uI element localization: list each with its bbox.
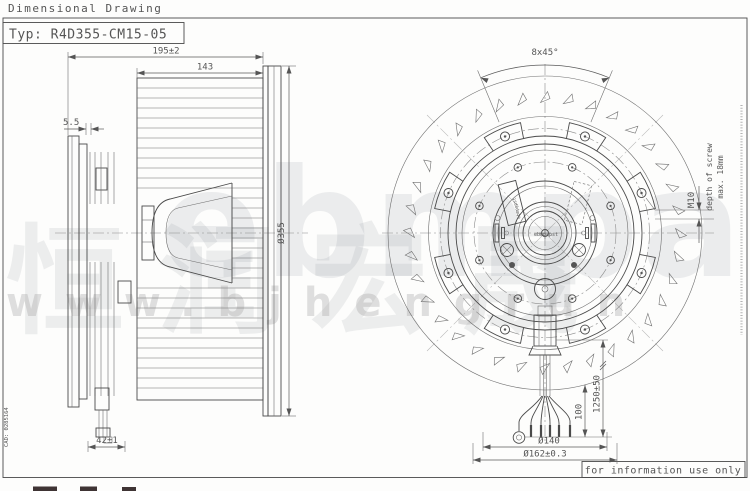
- blade: [656, 294, 670, 308]
- blade: [420, 158, 434, 172]
- svg-text:195±2: 195±2: [152, 47, 179, 57]
- dim-cable-length: 1250±50: [556, 340, 608, 437]
- arrowhead: [88, 445, 96, 450]
- arrowhead: [287, 66, 292, 74]
- dim-lead-strip: 100: [575, 385, 586, 437]
- arrowhead: [601, 430, 606, 438]
- impeller-side: [137, 78, 263, 400]
- side-view: 195±2 143 5.5 Ø355 42±1: [55, 47, 308, 453]
- blade: [492, 354, 505, 368]
- blade: [434, 138, 449, 152]
- blade: [420, 294, 434, 308]
- technical-drawing-canvas: Dimensional Drawing Typ: R4D355-CM15-05 …: [0, 0, 750, 491]
- drawing-title: Dimensional Drawing: [8, 2, 162, 15]
- blade: [410, 180, 424, 193]
- arrowhead: [256, 71, 264, 76]
- mounting-note-line1: depth of screw: [705, 143, 714, 211]
- type-label: Typ: R4D355-CM15-05: [9, 28, 167, 43]
- blade: [666, 273, 680, 286]
- svg-text:42±1: 42±1: [96, 436, 118, 446]
- blade: [656, 158, 670, 172]
- center-cap-logo: ebmpapst: [534, 232, 558, 238]
- arrowhead: [287, 409, 292, 417]
- svg-text:1250±50: 1250±50: [593, 375, 603, 413]
- blade: [450, 330, 464, 345]
- arrowhead: [137, 71, 145, 76]
- inlet-flange: [68, 136, 131, 407]
- dim-impeller-depth: 143: [137, 63, 263, 79]
- blade: [516, 93, 527, 105]
- impeller-slats: [137, 88, 263, 388]
- dim-total-depth: 195±2: [68, 47, 263, 136]
- dim-cable-offset: 42±1: [88, 436, 125, 452]
- blade: [606, 108, 620, 122]
- blade: [585, 354, 598, 368]
- blade: [673, 204, 685, 215]
- arrowhead: [91, 127, 99, 132]
- nameplate: ebmpapst: [498, 180, 526, 225]
- blade: [470, 344, 484, 358]
- svg-text:Ø140: Ø140: [538, 436, 560, 447]
- arrowhead: [79, 127, 87, 132]
- svg-text:Ø355: Ø355: [276, 222, 287, 244]
- blade: [642, 139, 657, 153]
- blade: [563, 93, 574, 105]
- blade: [470, 108, 484, 122]
- dim-mounting-thread: M10 depth of screw max. 18mm: [646, 143, 725, 243]
- arrowhead: [697, 203, 702, 211]
- dim-inlet-gap: 5.5: [63, 118, 104, 135]
- mounting-note-line2: max. 18mm: [716, 155, 725, 199]
- blade: [606, 344, 620, 358]
- svg-text:100: 100: [575, 404, 585, 420]
- info-note-label: for information use only: [585, 466, 742, 477]
- arrowhead: [483, 445, 491, 450]
- blade: [451, 121, 465, 136]
- svg-text:Ø162±0.3: Ø162±0.3: [523, 449, 566, 460]
- arrowhead: [600, 445, 608, 450]
- blade: [563, 361, 574, 373]
- side-cable: [95, 388, 112, 443]
- arrowhead: [601, 340, 606, 348]
- arrowhead: [68, 55, 76, 60]
- dimension-arrowheads: [68, 55, 702, 463]
- svg-text:143: 143: [197, 63, 213, 73]
- cropped-stamp-marks: [33, 487, 136, 491]
- front-view: ebmpapst ebmpapst: [382, 48, 725, 464]
- blade: [673, 251, 685, 262]
- svg-text:8x45°: 8x45°: [531, 48, 558, 58]
- blade: [410, 273, 424, 286]
- sheet-frame: Dimensional Drawing Typ: R4D355-CM15-05 …: [3, 2, 747, 491]
- dimensional-drawing-page: { "header": { "title": "Dimensional Draw…: [0, 0, 750, 491]
- arrowhead: [118, 445, 126, 450]
- blade: [666, 180, 680, 193]
- blade: [405, 204, 417, 215]
- wire-tips: [531, 425, 570, 437]
- blade: [433, 313, 448, 327]
- arrowhead: [583, 430, 588, 438]
- blade: [625, 122, 639, 137]
- blade: [642, 313, 657, 327]
- arrowhead: [697, 219, 702, 227]
- arrowhead: [256, 55, 264, 60]
- dim-outer-diameter: Ø355: [276, 66, 296, 416]
- arrowhead: [473, 458, 481, 463]
- arrowhead: [583, 385, 588, 393]
- blade: [625, 330, 639, 345]
- blade: [516, 361, 527, 373]
- svg-text:M10: M10: [687, 192, 697, 208]
- cad-reference: CAD: 0285164: [4, 407, 10, 447]
- ring-terminal: [513, 432, 525, 444]
- inlet-support-lines: [90, 152, 114, 396]
- svg-text:5.5: 5.5: [63, 118, 79, 128]
- blade: [405, 251, 417, 262]
